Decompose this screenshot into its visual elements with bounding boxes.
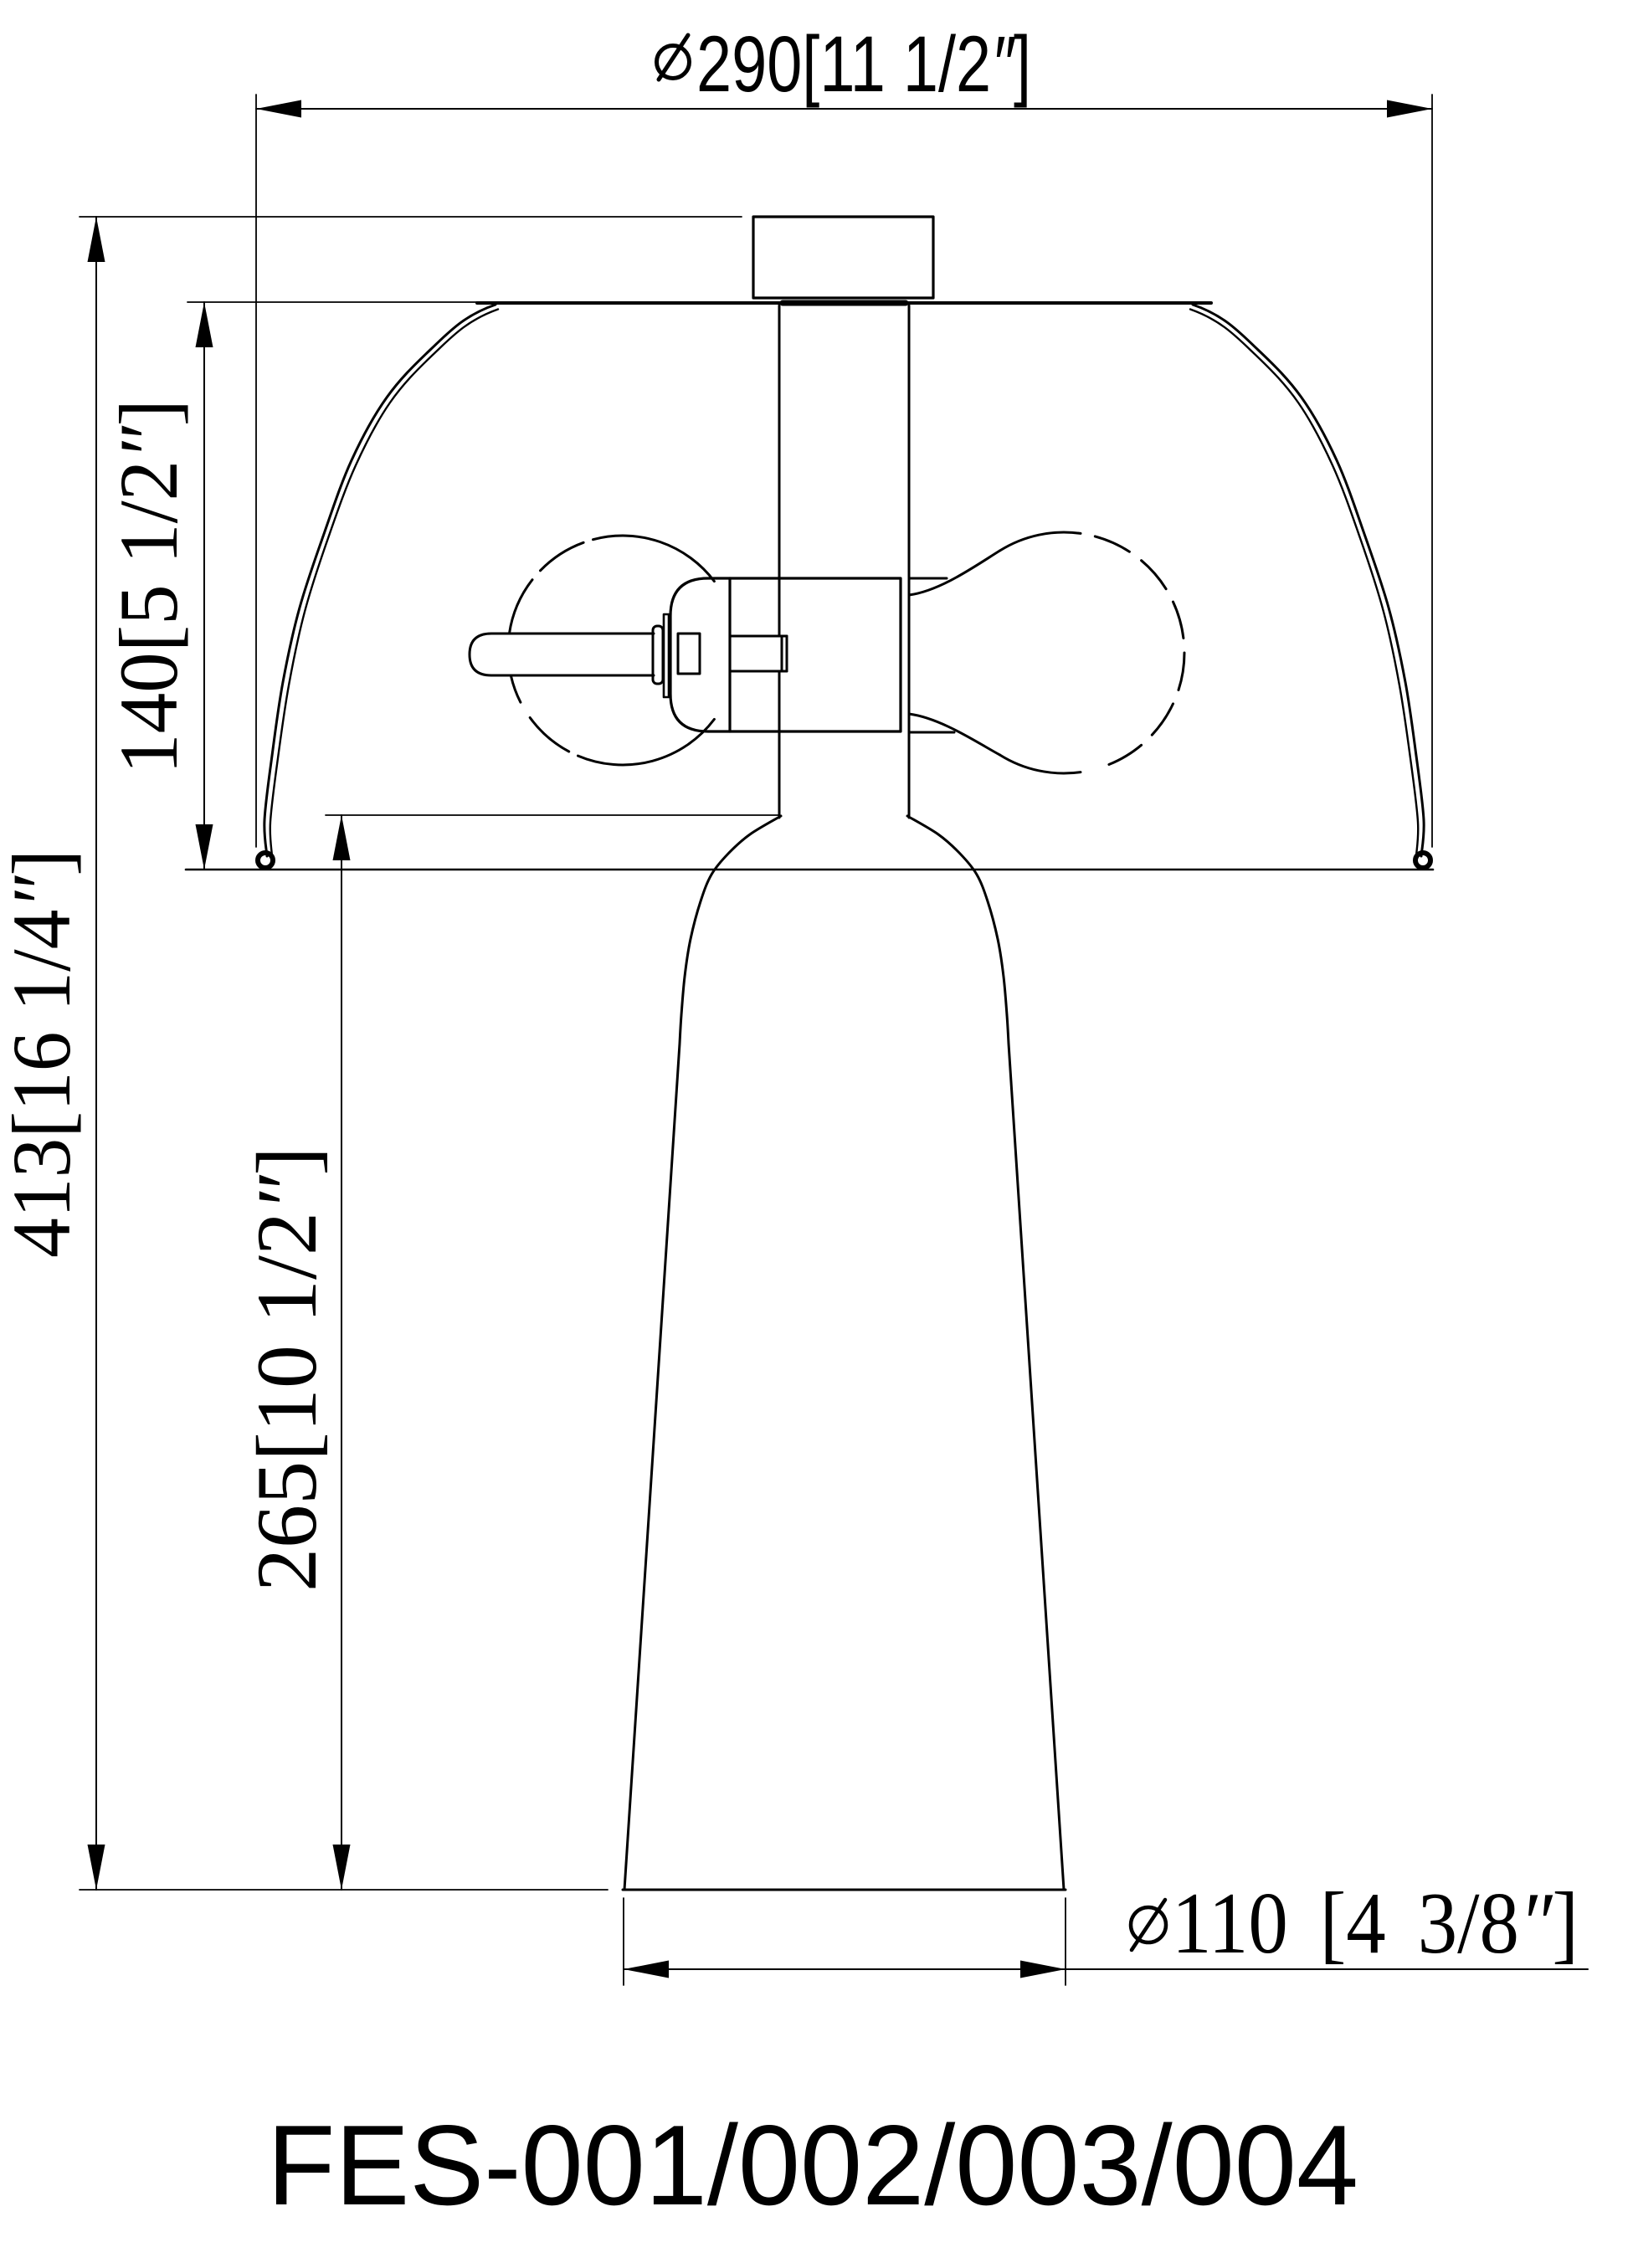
- svg-text:110 [4 3/8″]: 110 [4 3/8″]: [1172, 1874, 1579, 1972]
- svg-text:265[10 1/2″]: 265[10 1/2″]: [239, 1147, 335, 1592]
- svg-text:413[16 1/4″]: 413[16 1/4″]: [0, 849, 88, 1258]
- svg-text:140[5 1/2″]: 140[5 1/2″]: [102, 399, 195, 774]
- svg-text:290[11 1/2″]: 290[11 1/2″]: [696, 20, 1031, 109]
- svg-text:FES-001/002/003/004: FES-001/002/003/004: [267, 2101, 1358, 2229]
